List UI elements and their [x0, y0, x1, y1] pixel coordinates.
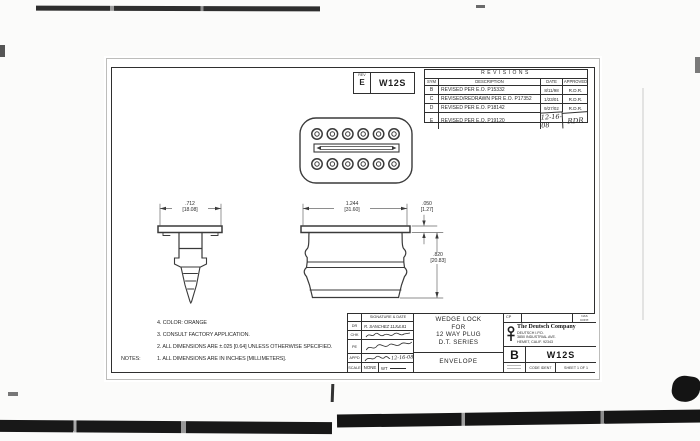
revision-row: C REVISED/REDRAWN PER E.O. P17352 1/23/0… [425, 94, 587, 103]
scan-artifact [8, 392, 18, 396]
checker-signature-squiggle [364, 331, 412, 340]
company-block: CP NAS CONT. The Deutsch Company DEUTSCH… [504, 314, 596, 373]
revision-row: E REVISED PER E.O. P19120 12-16-08 RDR [425, 112, 587, 122]
signature-table: SIGNATURE & DATE DR R. SANCHEZ 11JUL81 C… [348, 314, 414, 373]
note-1-text: 1. ALL DIMENSIONS ARE IN INCHES [MILLIME… [157, 356, 286, 362]
code-sheet-row: CODE IDENT SHEET 1 OF 1 [504, 362, 596, 373]
dimension-mm: [1.27] [413, 207, 441, 213]
scale-value: NONE [362, 363, 379, 373]
title-line: D.T. SERIES [414, 339, 503, 347]
cp-cell: CP [504, 314, 522, 322]
revision-sym: E [425, 112, 439, 129]
approval-date: 12-16-08 [391, 354, 414, 361]
revision-date: 1/23/01 [541, 94, 563, 103]
company-logo-icon [506, 326, 516, 343]
drawing-subtitle: ENVELOPE [414, 358, 503, 365]
note-2: 2. ALL DIMENSIONS ARE ±.025 [0.64] UNLES… [157, 344, 332, 350]
revision-date: 8/11/98 [541, 85, 563, 94]
scan-artifact [476, 5, 485, 8]
signature-label: CHK [348, 331, 362, 339]
company-name: The Deutsch Company [517, 324, 596, 331]
scale-label: SCALE [348, 363, 362, 373]
revision-approved-handwritten: RDR [562, 111, 588, 130]
dimension-flange-width: .712 [18.08] [172, 201, 208, 213]
form-cell [504, 363, 526, 373]
form-smudge [507, 365, 521, 371]
size-cell: B [504, 347, 526, 362]
revisions-header-row: SYM DESCRIPTION DATE APPROVED [425, 78, 587, 86]
revision-approved: R.D.R. [563, 94, 588, 103]
signature-header: SIGNATURE & DATE [362, 314, 414, 321]
title-block: SIGNATURE & DATE DR R. SANCHEZ 11JUL81 C… [347, 313, 595, 372]
revisions-title: REVISIONS [425, 70, 587, 78]
signature-label: PE [348, 340, 362, 353]
company-top-row: CP NAS CONT. [504, 314, 596, 323]
company-identity: The Deutsch Company DEUTSCH I.P.D. 3850 … [504, 323, 596, 346]
size-number-row: B W12S [504, 346, 596, 362]
rev-letter: E [354, 78, 370, 88]
revision-description: REVISED PER E.O. P19120 [439, 112, 541, 129]
drawing-number-cell: W12S [526, 347, 596, 362]
contract-cell: NAS CONT. [572, 314, 596, 322]
dimension-mm: [31.60] [334, 207, 370, 213]
code-ident-cell: CODE IDENT [526, 363, 556, 373]
revision-approved: R.D.R. [563, 85, 588, 94]
signature-label: DR [348, 322, 362, 330]
company-address-line: HEMET, CALIF. 92343 [517, 340, 596, 344]
weight-label: WT [381, 366, 388, 371]
dimension-body-width: 1.244 [31.60] [334, 201, 370, 213]
drafter-signature: R. SANCHEZ 11JUL81 [362, 322, 414, 330]
revision-sym: C [425, 94, 439, 103]
note-3: 3. CONSULT FACTORY APPLICATION. [157, 332, 250, 338]
scan-artifact [331, 384, 335, 402]
title-line: WEDGE LOCK [414, 316, 503, 324]
scan-artifact [0, 45, 5, 57]
revision-description: REVISED PER E.O. P18142 [439, 103, 541, 112]
revision-sym: D [425, 103, 439, 112]
weight-dash [390, 368, 406, 369]
revisions-header: APPROVED [563, 78, 588, 86]
revision-row: D REVISED PER E.O. P18142 9/27/02 R.D.R. [425, 103, 587, 112]
revisions-header: DESCRIPTION [439, 78, 541, 86]
scan-artifact [695, 57, 700, 73]
dimension-body-height: .820 [20.83] [424, 252, 452, 264]
revisions-table: REVISIONS SYM DESCRIPTION DATE APPROVED … [424, 69, 588, 123]
dimension-mm: [18.08] [172, 207, 208, 213]
sheet-cell: SHEET 1 OF 1 [556, 363, 596, 373]
scan-artifact [36, 6, 320, 12]
revisions-header: SYM [425, 78, 439, 86]
revision-description: REVISED PER E.O. P15332 [439, 85, 541, 94]
revision-row: B REVISED PER E.O. P15332 8/11/98 R.D.R. [425, 85, 587, 94]
signature-label [348, 314, 362, 321]
signature-label: APPD [348, 354, 362, 362]
scan-artifact [670, 374, 700, 404]
title-line: 12 WAY PLUG [414, 331, 503, 339]
title-line: FOR [414, 324, 503, 332]
notes-prefix: NOTES: [121, 356, 157, 362]
revision-sym: B [425, 85, 439, 94]
approver-signature-squiggle [363, 354, 391, 363]
revision-date-handwritten: 12-16-08 [541, 111, 564, 129]
title-divider [414, 352, 503, 353]
dimension-mm: [20.83] [424, 258, 452, 264]
scan-crease [642, 88, 644, 320]
drawing-number: W12S [371, 73, 414, 93]
contract-line: CONT. [573, 318, 596, 322]
revisions-header: DATE [541, 78, 563, 86]
dimension-flange-thickness: .050 [1.27] [413, 201, 441, 213]
scan-artifact [0, 420, 332, 434]
drawing-title-cell: WEDGE LOCK FOR 12 WAY PLUG D.T. SERIES E… [414, 314, 504, 373]
engineer-signature-squiggle [364, 340, 414, 353]
note-1: NOTES:1. ALL DIMENSIONS ARE IN INCHES [M… [121, 356, 286, 362]
rev-box: REV E W12S [353, 72, 415, 94]
revision-description: REVISED/REDRAWN PER E.O. P17352 [439, 94, 541, 103]
note-4: 4. COLOR: ORANGE [157, 320, 207, 326]
scan-artifact [337, 409, 700, 427]
scanned-engineering-drawing: { "ink": "#2b2b2b", "paper": "#ffffff", … [0, 0, 700, 441]
rev-cell: REV E [354, 73, 371, 93]
